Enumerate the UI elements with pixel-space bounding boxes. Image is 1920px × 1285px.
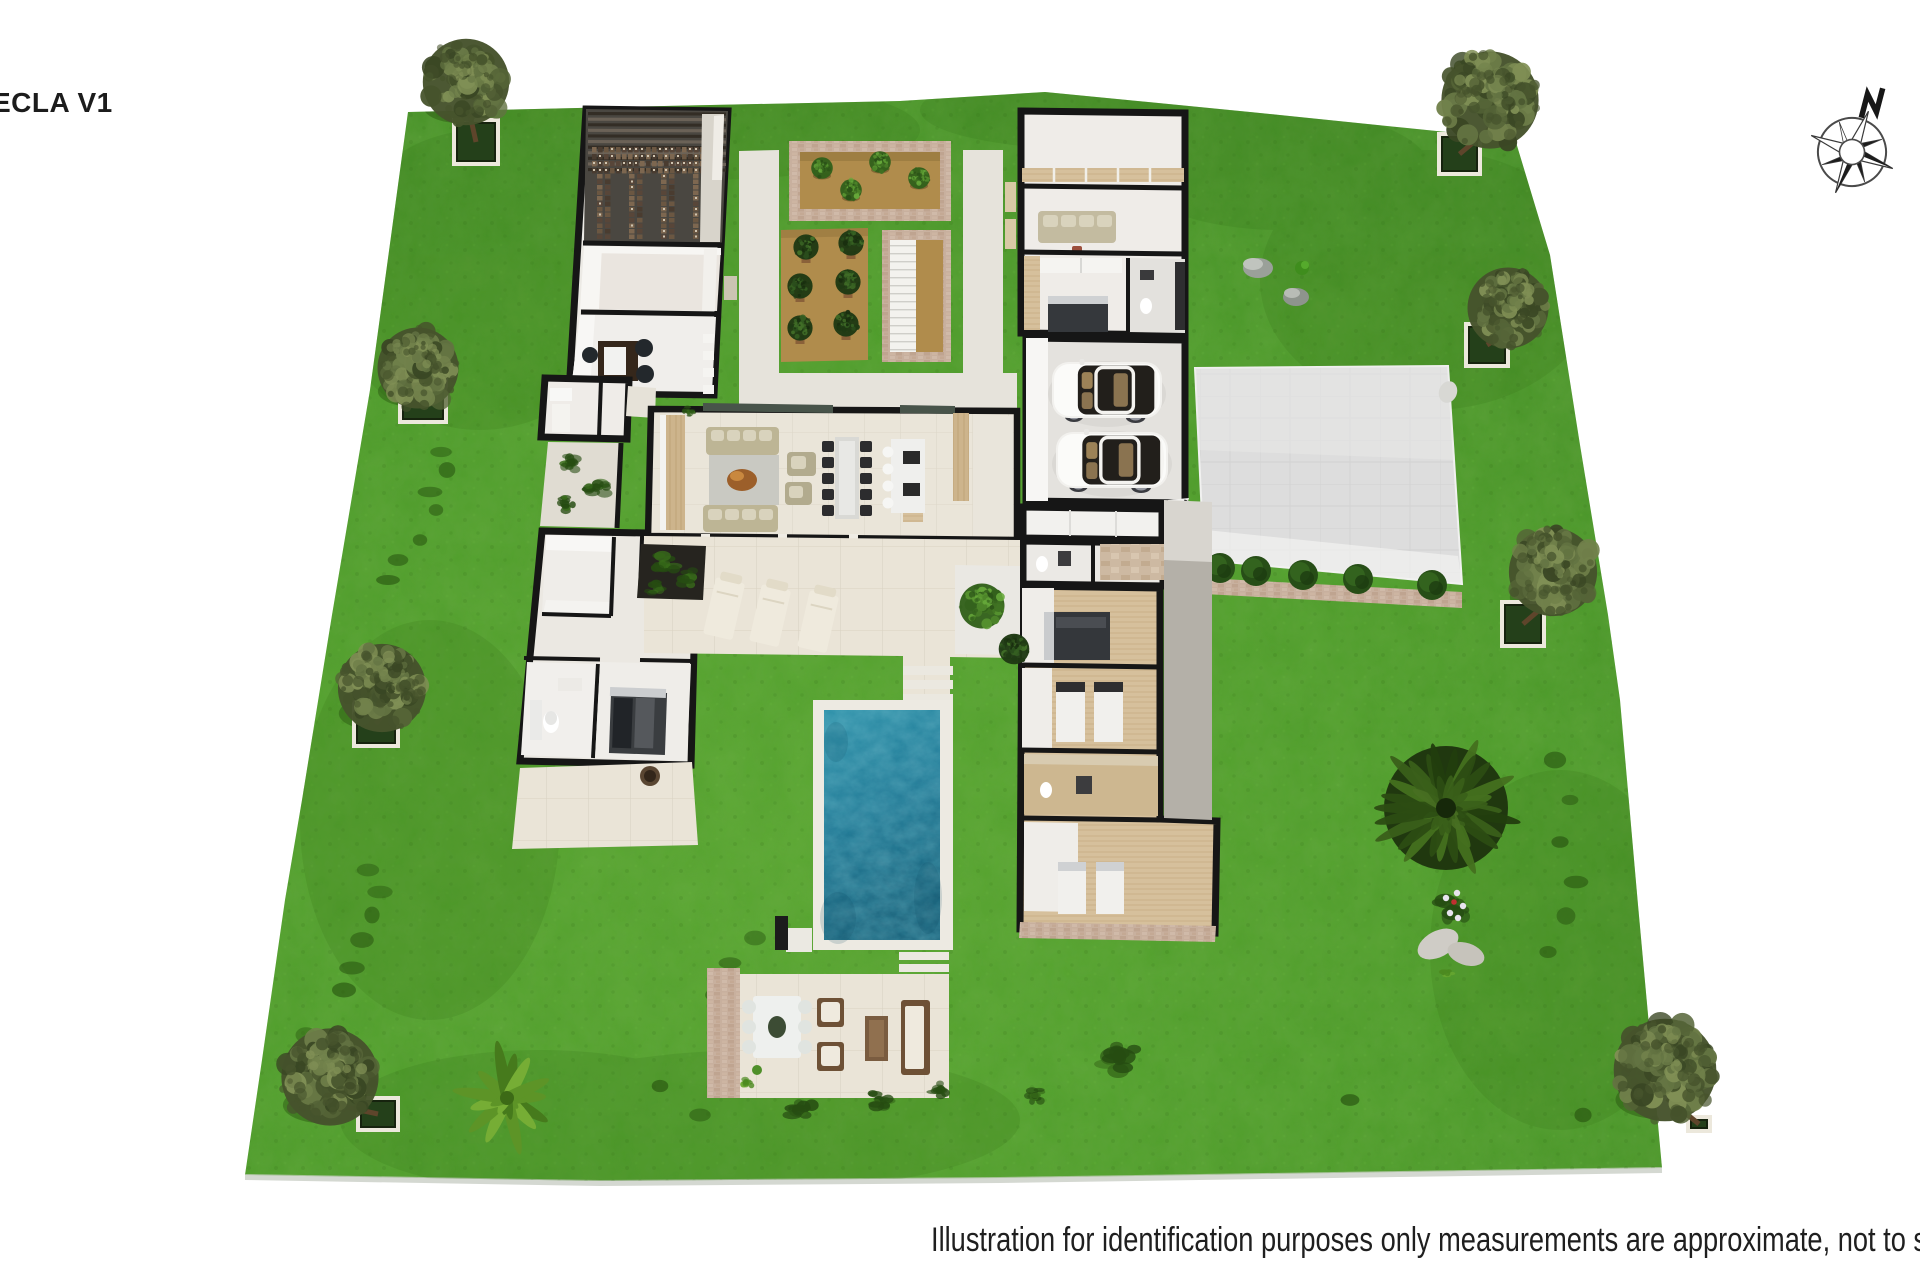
svg-text:ECLA V1: ECLA V1 [0, 87, 113, 118]
svg-text:Illustration for identificatio: Illustration for identification purposes… [931, 1221, 1920, 1259]
